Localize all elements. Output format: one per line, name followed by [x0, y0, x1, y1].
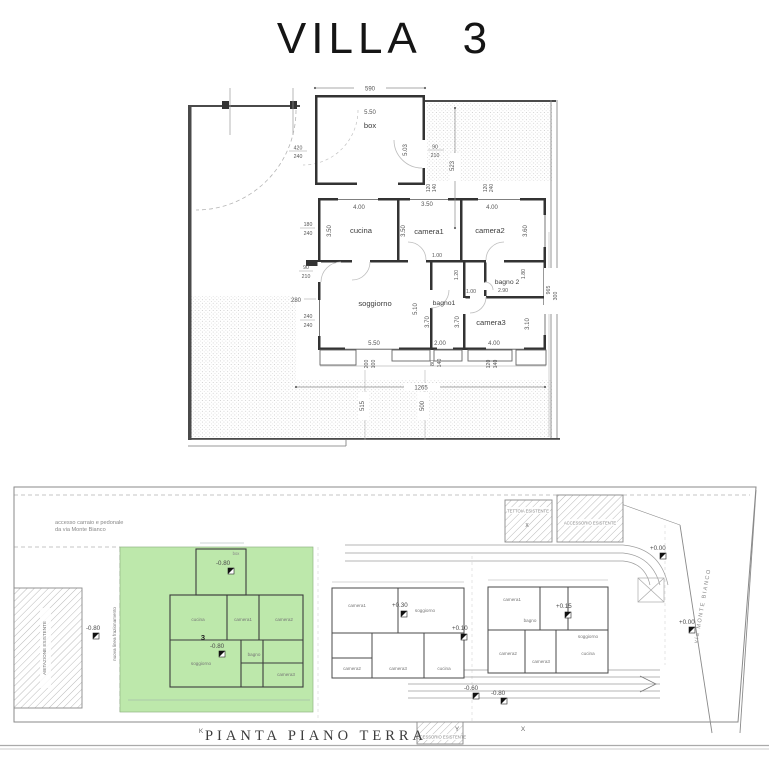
dim-camera1-d: 3.50	[401, 225, 407, 237]
room-bagno1: bagno1	[433, 300, 456, 307]
access-note-2: da via Monte Bianco	[55, 527, 106, 533]
road-via-monte-bianco	[610, 490, 756, 733]
level-road: +0.00	[679, 619, 695, 626]
dim-bagno1-d: 3.70	[425, 316, 431, 328]
dim-bagno1-w: 2.00	[434, 341, 446, 347]
plan-canvas: 590 5.50 box 5.03 90 210 420 240 523 120…	[0, 0, 769, 768]
benchmark-icon	[473, 693, 479, 699]
v1-room-soggiorno: soggiorno	[578, 634, 599, 639]
drawing-sheet: VILLA 3	[0, 0, 769, 768]
room-camera3: camera3	[476, 318, 506, 327]
v2-room-camera3: camera3	[389, 666, 407, 671]
dim-pw3-a: 120	[486, 360, 492, 369]
v1-room-camera3: camera3	[532, 659, 550, 664]
frazionamento-label: nuova linea frazionamento	[112, 607, 117, 661]
v1-room-cucina: cucina	[581, 651, 595, 656]
marker-y: Y	[455, 726, 460, 733]
benchmark-icon	[565, 612, 571, 618]
door-arcs	[321, 242, 504, 313]
frazionamento-line: nuova linea frazionamento	[112, 547, 120, 712]
driveway-strips	[345, 545, 668, 585]
dim-pw1-a: 200	[364, 360, 370, 369]
level-villa1: +0.15	[556, 603, 572, 610]
room-box: box	[364, 121, 376, 130]
v1-room-bagno: bagno	[524, 618, 537, 623]
dim-camera1-w: 3.50	[421, 202, 433, 208]
dim-box-d: 5.03	[403, 144, 409, 156]
dim-pw2-a: 80	[430, 360, 436, 366]
villa-number: 3	[201, 633, 205, 642]
dim-camera3-d: 3.10	[525, 318, 531, 330]
v1-room-camera2: camera2	[499, 651, 517, 656]
level-box3: -0.80	[216, 560, 231, 567]
accessorio-esistente-top: ACCESSORIO ESISTENTE	[557, 495, 623, 542]
benchmark-icon	[461, 634, 467, 640]
v2-room-soggiorno: soggiorno	[415, 608, 436, 613]
dim-sog-win-w: 240	[304, 314, 313, 320]
dim-lot-d2: 500	[420, 400, 426, 411]
accessorio-top-label: ACCESSORIO ESISTENTE	[564, 521, 617, 526]
dim-door2: 1.00	[466, 289, 476, 295]
level-mid: +0.10	[452, 625, 468, 632]
dim-pw2-b: 140	[437, 359, 443, 368]
abitazione-label: ABITAZIONE ESISTENTE	[42, 621, 47, 675]
level-low1: -0.60	[464, 685, 479, 692]
benchmark-icon	[93, 633, 99, 639]
access-note-1: accesso carraio e pedonale	[55, 520, 123, 526]
dim-bagno2-w: 2.90	[498, 288, 508, 294]
street-label: via MONTE BIANCO	[693, 568, 712, 644]
benchmark-icon	[401, 611, 407, 617]
dim-entry-w: 90	[303, 265, 309, 271]
dim-cucina-w: 4.00	[353, 205, 365, 211]
dim-right-d2: 300	[553, 292, 559, 301]
dim-camera3-d2: 3.70	[455, 316, 461, 328]
level-abit: -0.80	[86, 625, 101, 632]
villa2-footprint	[332, 582, 464, 678]
level-low2: -0.80	[491, 690, 506, 697]
dim-door1: 1.00	[432, 253, 442, 259]
dim-gate-h: 240	[294, 154, 303, 160]
dim-corridor: 1.20	[454, 270, 460, 280]
dim-box-w: 5.50	[364, 110, 376, 116]
v3-room-camera2: camera2	[275, 617, 293, 622]
dim-bagno2-d: 1.80	[521, 269, 527, 279]
dim-camera2-w: 4.00	[486, 205, 498, 211]
room-camera1: camera1	[414, 227, 444, 236]
benchmark-icon	[660, 553, 666, 559]
v2-room-camera1: camera1	[348, 603, 366, 608]
dim-right-d1: 965	[546, 286, 552, 295]
benchmark-icon	[228, 568, 234, 574]
room-cucina: cucina	[350, 226, 373, 235]
site-plan: ABITAZIONE ESISTENTE accesso carraio e p…	[0, 487, 769, 749]
v2-room-camera2: camera2	[343, 666, 361, 671]
marker-x: X	[521, 726, 526, 733]
v3-room-box: box	[233, 551, 241, 556]
floor-plan-villa3: 590 5.50 box 5.03 90 210 420 240 523 120…	[188, 84, 560, 446]
dim-court-right: 523	[450, 160, 456, 171]
dim-box-door-w: 90	[432, 145, 438, 151]
v3-room-cucina: cucina	[191, 617, 205, 622]
garage-box	[315, 95, 425, 185]
v3-room-camera3: camera3	[277, 672, 295, 677]
level-villa2: +0.30	[392, 602, 408, 609]
dim-pw1-b: 100	[371, 360, 377, 369]
level-villa3: -0.80	[210, 643, 225, 650]
dim-cucina-d: 3.50	[327, 225, 333, 237]
dim-site-top: 590	[365, 87, 376, 93]
dim-win2-h: 240	[489, 184, 495, 193]
dim-box-door-h: 210	[431, 153, 440, 159]
tettoia-label: TETTOIA ESISTENTE	[507, 509, 549, 514]
dim-lot-d1: 515	[360, 400, 366, 411]
tettoia-esistente: TETTOIA ESISTENTE X	[505, 500, 552, 542]
dim-sog-w: 5.50	[368, 341, 380, 347]
dim-entry-h: 210	[302, 274, 311, 280]
dim-lot-w: 1265	[414, 386, 428, 392]
dim-win1-h: 140	[432, 184, 438, 193]
abitazione-esistente: ABITAZIONE ESISTENTE	[14, 588, 82, 708]
dim-camera3-w: 4.00	[488, 341, 500, 347]
room-camera2: camera2	[475, 226, 505, 235]
v3-room-soggiorno: soggiorno	[191, 661, 212, 666]
room-bagno2: bagno 2	[495, 279, 520, 286]
dim-gate-w: 420	[294, 146, 303, 152]
dim-cucina-win-w: 180	[304, 222, 313, 228]
v2-room-cucina: cucina	[437, 666, 451, 671]
dim-pw3-b: 140	[493, 360, 499, 369]
sheet-title: PIANTA PIANO TERRA	[205, 728, 427, 744]
dim-left-off: 280	[291, 298, 302, 304]
level-top-right: +0.00	[650, 545, 666, 552]
dim-sog-win-h: 240	[304, 323, 313, 329]
benchmark-icon	[219, 651, 225, 657]
dim-cucina-win-h: 240	[304, 231, 313, 237]
dim-camera2-d: 3.60	[523, 225, 529, 237]
room-soggiorno: soggiorno	[358, 299, 391, 308]
benchmark-icon	[689, 627, 695, 633]
v3-room-bagno: bagno	[248, 652, 261, 657]
marker-k: K	[199, 728, 204, 735]
benchmark-icon	[501, 698, 507, 704]
green-lot: box cucina camera1 camera2 soggiorno bag…	[120, 543, 313, 712]
v3-room-camera1: camera1	[234, 617, 252, 622]
v1-room-camera1: camera1	[503, 597, 521, 602]
dim-sog-d: 5.10	[413, 303, 419, 315]
